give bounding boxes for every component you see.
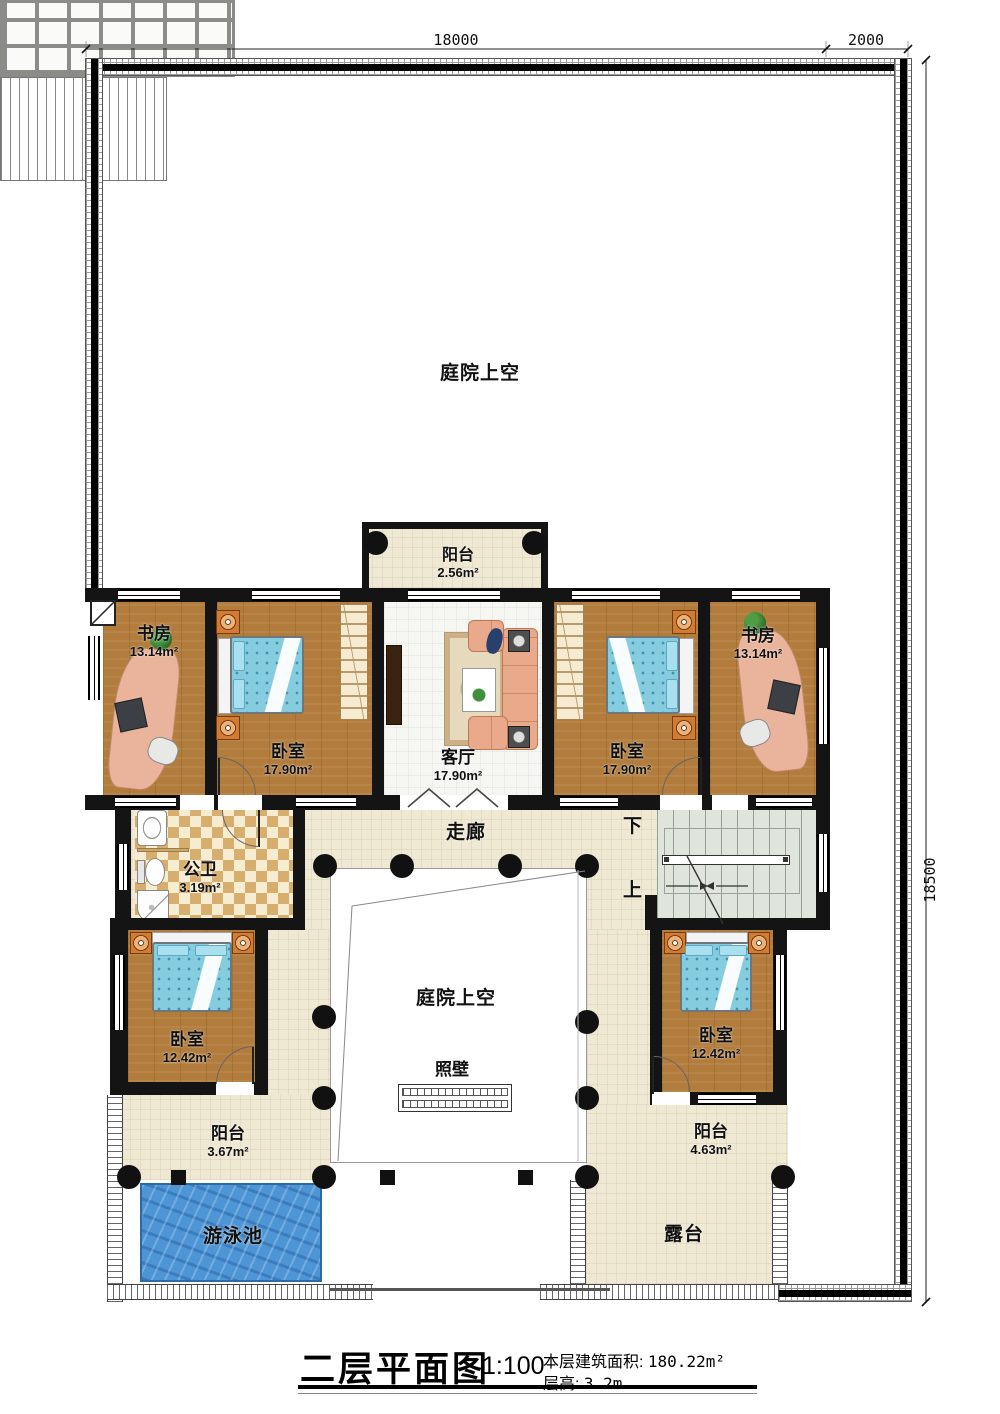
column <box>575 1165 599 1189</box>
window <box>88 636 100 700</box>
column <box>117 1165 141 1189</box>
pillow <box>666 679 678 709</box>
window <box>115 796 176 808</box>
stair-down-label: 下 <box>623 816 643 839</box>
column <box>498 854 522 878</box>
armchair <box>468 716 508 750</box>
door-opening-bathroom <box>222 795 262 810</box>
side-table <box>508 630 530 652</box>
column <box>575 1010 599 1034</box>
side-table <box>508 726 530 748</box>
nightstand <box>672 716 696 740</box>
pillow <box>195 945 227 956</box>
room-courtyard-center <box>330 868 587 1163</box>
stair-handrail <box>662 855 790 865</box>
floor-area-label: 本层建筑面积: <box>543 1354 643 1371</box>
window <box>774 955 786 1030</box>
room-label-corridor: 走廊 <box>446 822 486 845</box>
toilet <box>145 858 165 886</box>
nightstand <box>130 932 152 954</box>
nightstand <box>232 932 254 954</box>
door-leaf <box>700 757 702 795</box>
bathroom-sink <box>137 810 167 846</box>
floor-height-line: 层高: 3.2m <box>543 1370 622 1394</box>
drawing-scale: 1:100 <box>482 1352 545 1381</box>
pillow <box>685 945 713 956</box>
window <box>296 796 356 808</box>
room-label-screen-wall: 照壁 <box>435 1060 469 1080</box>
railing-west <box>107 1095 123 1302</box>
door-opening-study-nw <box>180 795 214 810</box>
vanity-counter <box>137 848 189 852</box>
nightstand <box>216 610 240 634</box>
nightstand <box>672 610 696 634</box>
screen-wall-hatch <box>402 1100 508 1108</box>
door-opening-study-ne <box>712 795 748 810</box>
site-wall-left <box>85 58 103 592</box>
window <box>560 796 618 808</box>
entry-steps <box>0 77 167 181</box>
window <box>756 796 812 808</box>
window <box>817 834 829 892</box>
room-label-study-ne: 书房 13.14m² <box>734 626 782 662</box>
post <box>518 1170 533 1185</box>
railing-south-mid <box>540 1284 780 1300</box>
column <box>575 1086 599 1110</box>
site-wall-bottom-right <box>778 1284 912 1302</box>
bedroom-sw-wall-e <box>255 918 268 1095</box>
railing-terrace-west <box>570 1180 586 1284</box>
room-label-courtyard-center: 庭院上空 <box>416 988 496 1011</box>
window <box>572 589 660 601</box>
room-label-balcony-se: 阳台 4.63m² <box>690 1122 731 1158</box>
room-label-study-nw: 书房 13.14m² <box>130 624 178 660</box>
wardrobe <box>340 604 368 720</box>
room-label-pool: 游泳池 <box>203 1226 263 1249</box>
room-label-terrace: 露台 <box>664 1224 704 1247</box>
window <box>698 1093 756 1105</box>
site-wall-right <box>894 58 912 1302</box>
flue-shaft <box>90 600 116 626</box>
title-underline-thin <box>298 1393 757 1394</box>
pillow <box>233 679 245 709</box>
french-door-opening-living <box>400 795 508 810</box>
window <box>118 589 180 601</box>
window <box>117 844 129 890</box>
pillow <box>233 641 245 671</box>
floor-plan-canvas: 庭院上空 阳台 2.56m² <box>0 0 1000 1414</box>
dimension-top-right: 2000 <box>848 31 884 49</box>
column <box>312 1086 336 1110</box>
partition-living-w <box>372 602 384 795</box>
nightstand <box>748 932 770 954</box>
column <box>313 854 337 878</box>
wardrobe <box>556 604 584 720</box>
site-wall-top <box>85 58 912 76</box>
bed-headboard <box>678 638 694 714</box>
floor-height-label: 层高: <box>543 1376 579 1393</box>
computer-monitor <box>114 697 148 732</box>
coffee-table <box>462 668 496 712</box>
tv-cabinet <box>386 645 402 725</box>
window <box>817 648 829 744</box>
dimension-right: 18500 <box>921 857 939 902</box>
column <box>522 531 546 555</box>
room-label-balcony-sw: 阳台 3.67m² <box>207 1124 248 1160</box>
screen-wall-hatch <box>402 1088 508 1096</box>
door-opening-bedroom-se <box>652 1092 690 1105</box>
dimension-top: 18000 <box>433 31 478 49</box>
column <box>390 854 414 878</box>
pillow <box>719 945 747 956</box>
floor-area-line: 本层建筑面积: 180.22m² <box>543 1348 725 1372</box>
room-label-balcony-top: 阳台 2.56m² <box>437 546 478 581</box>
partition-living-e <box>542 602 554 795</box>
room-label-bedroom-sw: 卧室 12.42m² <box>163 1030 211 1066</box>
title-underline-thick <box>298 1385 757 1389</box>
bedroom-sw-wall-n <box>110 918 305 930</box>
room-label-courtyard-top: 庭院上空 <box>440 363 520 386</box>
post <box>171 1170 186 1185</box>
stair-up-label: 上 <box>623 880 643 903</box>
bathroom-wall-e <box>293 805 305 930</box>
room-label-living: 客厅 17.90m² <box>434 748 482 784</box>
column <box>771 1165 795 1189</box>
door-opening-bedroom-ne <box>660 795 702 810</box>
window <box>113 955 125 1030</box>
post <box>380 1170 395 1185</box>
bedroom-se-wall-n <box>650 918 787 930</box>
pillow <box>157 945 189 956</box>
steps-handrail <box>330 1288 610 1291</box>
window <box>732 589 800 601</box>
window <box>408 589 500 601</box>
railing-south-west <box>107 1284 373 1300</box>
window <box>252 589 340 601</box>
room-terrace <box>586 1105 788 1284</box>
floor-height-value: 3.2m <box>584 1374 623 1393</box>
nightstand <box>664 932 686 954</box>
room-label-bathroom: 公卫 3.19m² <box>179 860 220 896</box>
floor-area-value: 180.22m² <box>648 1352 725 1371</box>
railing-terrace-east <box>772 1180 788 1284</box>
column <box>575 854 599 878</box>
room-label-bedroom-ne: 卧室 17.90m² <box>603 742 651 778</box>
pillow <box>666 641 678 671</box>
room-label-bedroom-se: 卧室 12.42m² <box>692 1026 740 1062</box>
balcony-top-wall-n <box>362 522 548 529</box>
toilet <box>137 860 145 884</box>
column <box>312 1165 336 1189</box>
room-label-bedroom-nw: 卧室 17.90m² <box>264 742 312 778</box>
nightstand <box>216 716 240 740</box>
column <box>364 531 388 555</box>
column <box>312 1005 336 1029</box>
